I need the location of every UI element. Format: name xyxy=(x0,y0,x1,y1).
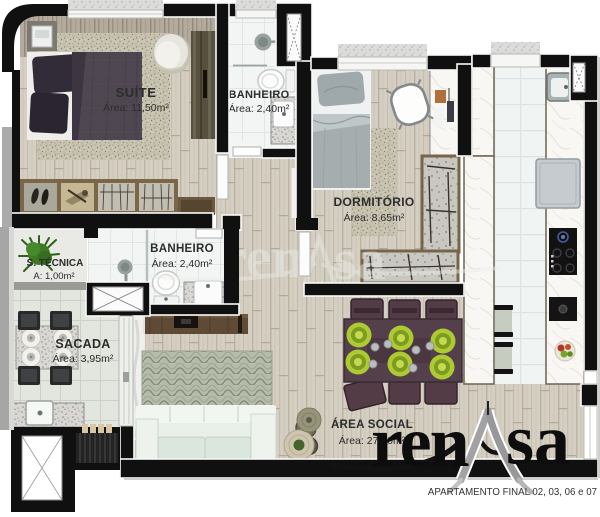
svg-text:Área: 2,40m²: Área: 2,40m² xyxy=(152,257,213,270)
svg-text:S. TÉCNICA: S. TÉCNICA xyxy=(27,256,84,269)
svg-text:Área: 2,40m²: Área: 2,40m² xyxy=(229,102,290,115)
svg-text:Área: 8,65m²: Área: 8,65m² xyxy=(344,211,405,224)
svg-text:Área: 3,95m²: Área: 3,95m² xyxy=(53,352,114,365)
svg-text:BANHEIRO: BANHEIRO xyxy=(150,243,214,255)
svg-text:APARTAMENTO FINAL 02, 03, 06 e: APARTAMENTO FINAL 02, 03, 06 e 07 xyxy=(428,487,597,498)
svg-text:A: 1,00m²: A: 1,00m² xyxy=(33,271,74,282)
svg-text:SUÍTE: SUÍTE xyxy=(116,85,157,100)
svg-text:SACADA: SACADA xyxy=(55,337,110,351)
svg-text:Área: 11,50m²: Área: 11,50m² xyxy=(103,101,169,114)
svg-text:DORMITÓRIO: DORMITÓRIO xyxy=(334,194,415,209)
svg-text:BANHEIRO: BANHEIRO xyxy=(228,89,289,101)
svg-text:ren: ren xyxy=(371,402,469,482)
svg-text:sa: sa xyxy=(506,400,570,480)
